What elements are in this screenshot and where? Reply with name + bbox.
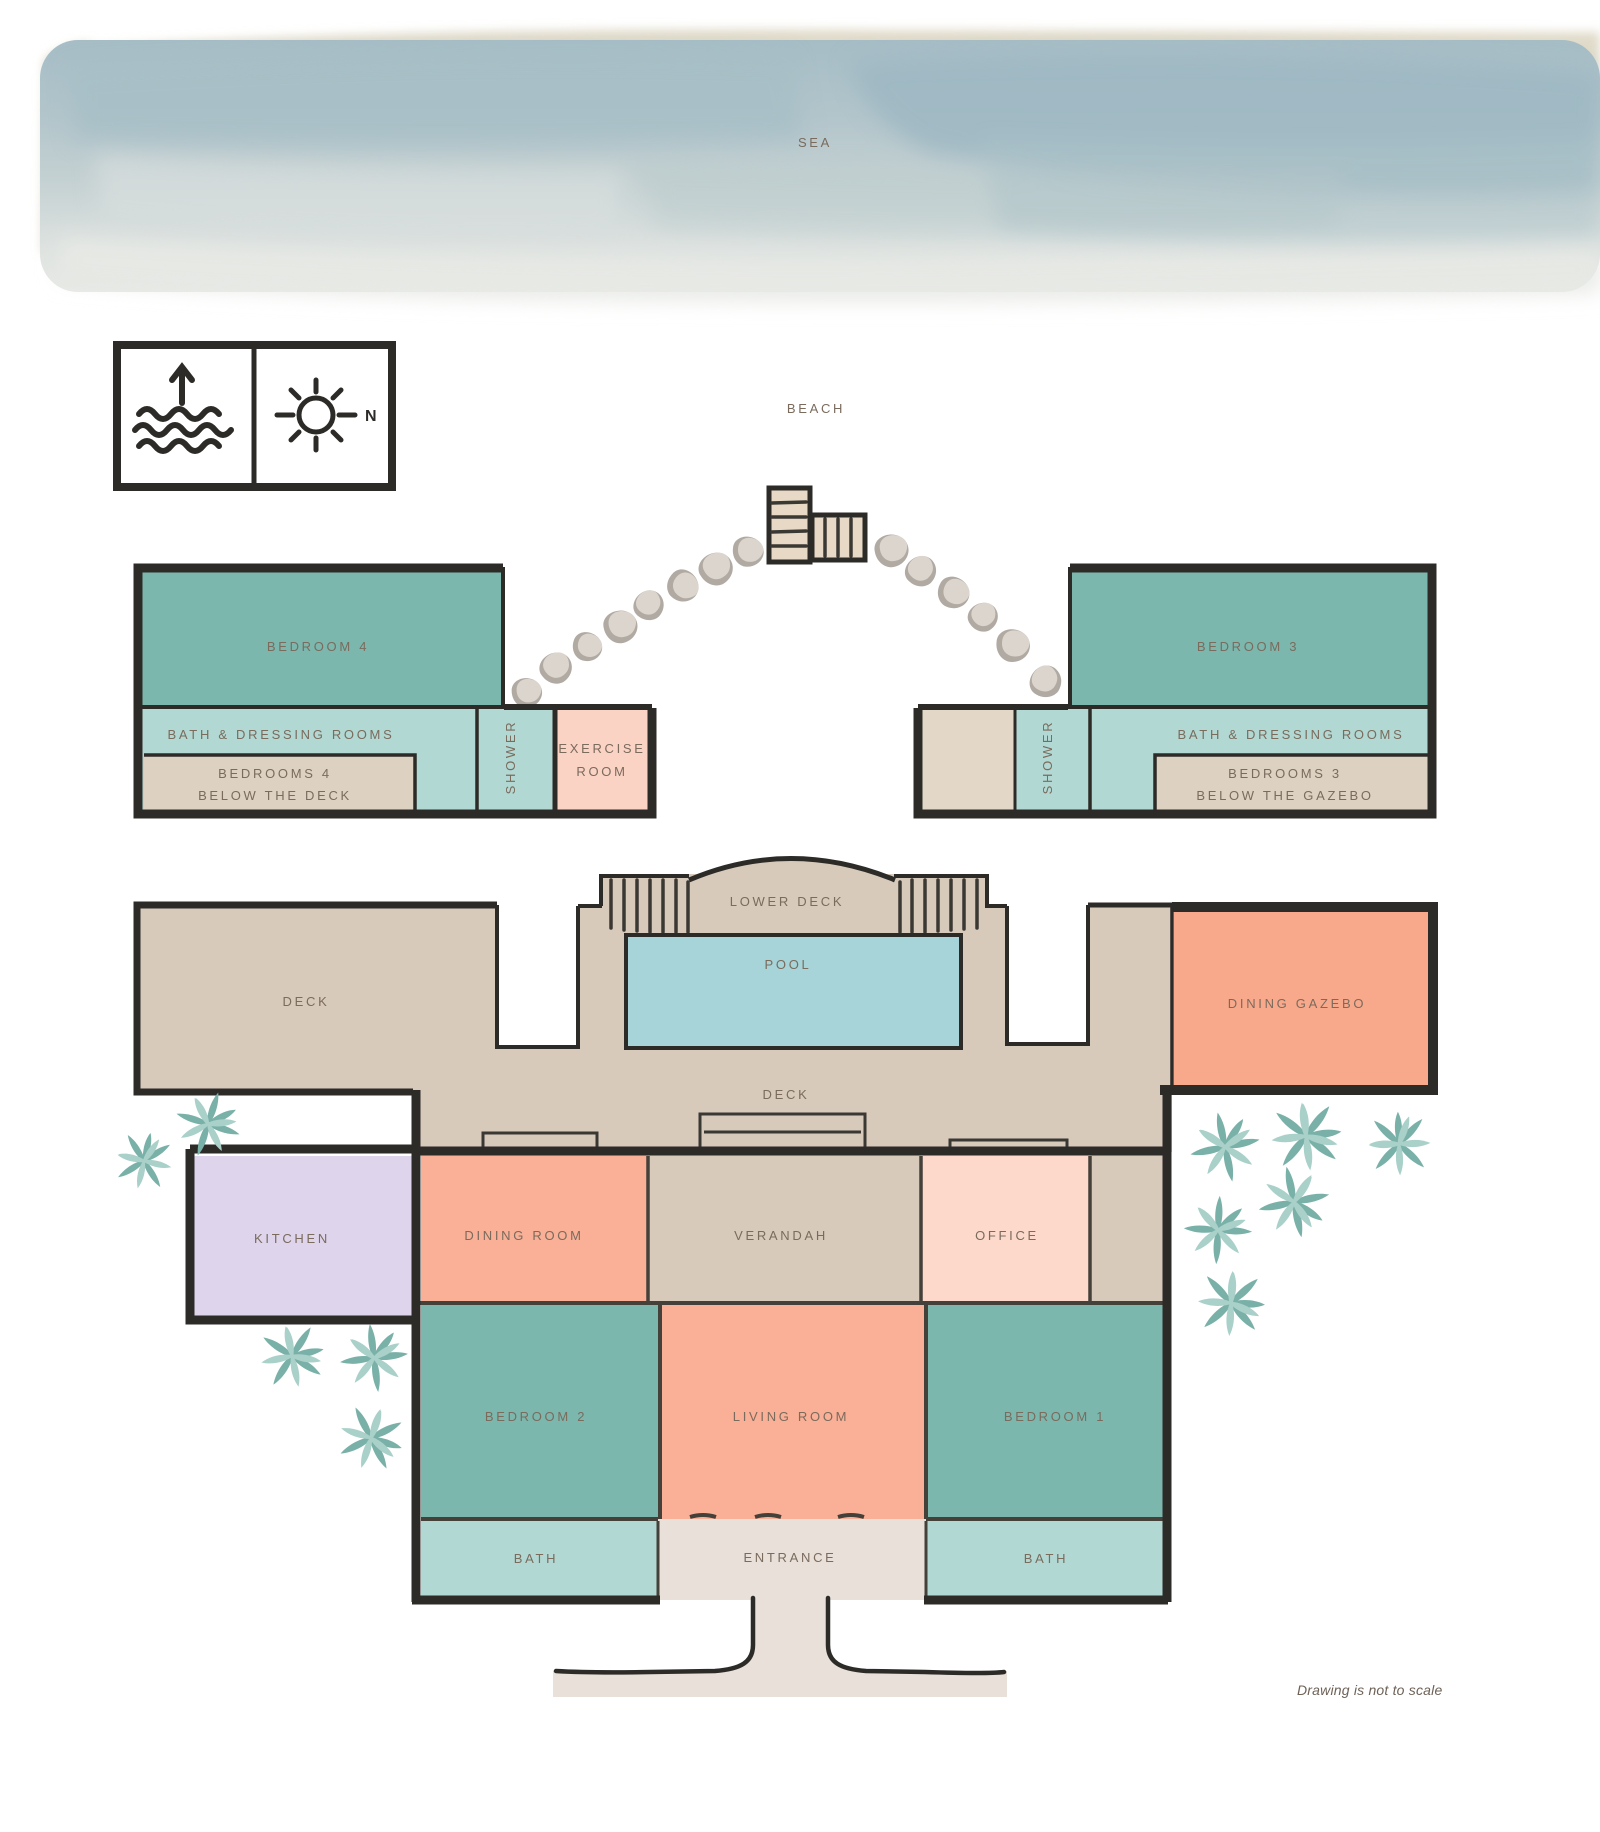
svg-text:EXERCISE: EXERCISE	[558, 741, 645, 756]
svg-text:POOL: POOL	[765, 957, 812, 972]
svg-text:OFFICE: OFFICE	[975, 1228, 1039, 1243]
svg-text:BEACH: BEACH	[787, 401, 845, 416]
svg-text:BELOW THE DECK: BELOW THE DECK	[198, 788, 352, 803]
svg-text:BEDROOM 1: BEDROOM 1	[1004, 1409, 1106, 1424]
svg-text:DECK: DECK	[283, 994, 330, 1009]
svg-text:N: N	[365, 408, 378, 425]
svg-text:BEDROOMS 4: BEDROOMS 4	[218, 766, 332, 781]
svg-text:SEA: SEA	[798, 135, 832, 150]
svg-text:BATH: BATH	[1024, 1551, 1069, 1566]
svg-text:BEDROOM 2: BEDROOM 2	[485, 1409, 587, 1424]
svg-text:BATH & DRESSING ROOMS: BATH & DRESSING ROOMS	[1178, 727, 1405, 742]
svg-text:LIVING ROOM: LIVING ROOM	[733, 1409, 849, 1424]
svg-text:ENTRANCE: ENTRANCE	[743, 1550, 836, 1565]
svg-text:BATH & DRESSING ROOMS: BATH & DRESSING ROOMS	[168, 727, 395, 742]
svg-text:BELOW THE GAZEBO: BELOW THE GAZEBO	[1196, 788, 1373, 803]
svg-text:BEDROOMS 3: BEDROOMS 3	[1228, 766, 1342, 781]
svg-text:BATH: BATH	[514, 1551, 559, 1566]
svg-text:DINING GAZEBO: DINING GAZEBO	[1228, 996, 1366, 1011]
svg-text:DECK: DECK	[763, 1087, 810, 1102]
svg-text:BEDROOM 4: BEDROOM 4	[267, 639, 369, 654]
svg-text:SHOWER: SHOWER	[503, 720, 518, 795]
svg-text:LOWER DECK: LOWER DECK	[730, 894, 844, 909]
svg-text:SHOWER: SHOWER	[1040, 720, 1055, 795]
svg-text:VERANDAH: VERANDAH	[734, 1228, 828, 1243]
svg-text:Drawing is not to scale: Drawing is not to scale	[1297, 1682, 1442, 1698]
svg-text:KITCHEN: KITCHEN	[254, 1231, 330, 1246]
svg-text:DINING ROOM: DINING ROOM	[464, 1228, 583, 1243]
svg-text:ROOM: ROOM	[576, 764, 627, 779]
svg-text:BEDROOM 3: BEDROOM 3	[1197, 639, 1299, 654]
